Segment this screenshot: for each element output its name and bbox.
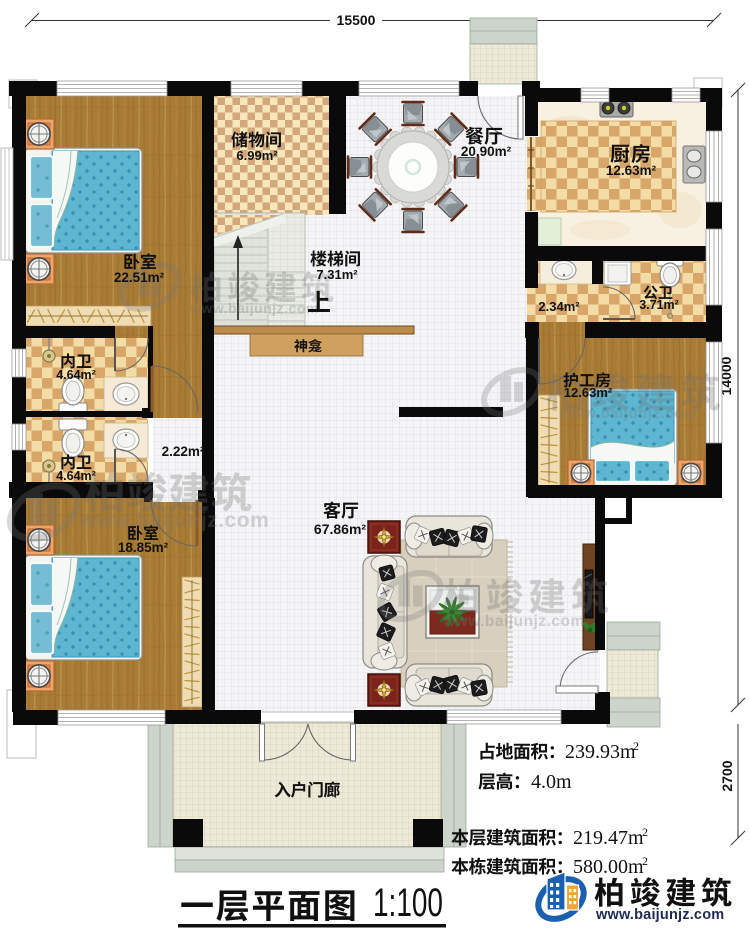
svg-text:www.baijunjz.com: www.baijunjz.com bbox=[559, 405, 697, 422]
svg-text:4.64m²: 4.64m² bbox=[56, 368, 96, 382]
svg-text:12.63m²: 12.63m² bbox=[564, 385, 613, 400]
svg-text:239.93m: 239.93m bbox=[565, 741, 636, 763]
svg-text:www.baijunjz.com: www.baijunjz.com bbox=[595, 907, 724, 923]
svg-text:4.0m: 4.0m bbox=[531, 771, 572, 793]
svg-text:580.00m: 580.00m bbox=[573, 856, 644, 878]
svg-text:12.63m²: 12.63m² bbox=[606, 163, 657, 178]
svg-text:www.baijunjz.com: www.baijunjz.com bbox=[189, 300, 319, 316]
svg-text:18.85m²: 18.85m² bbox=[118, 540, 169, 555]
svg-text:15500: 15500 bbox=[337, 12, 376, 28]
svg-text:3.71m²: 3.71m² bbox=[639, 298, 679, 312]
svg-text:20.90m²: 20.90m² bbox=[461, 144, 512, 159]
svg-text:2: 2 bbox=[642, 854, 648, 868]
svg-text:2.34m²: 2.34m² bbox=[538, 299, 580, 314]
svg-text:2: 2 bbox=[642, 825, 648, 839]
svg-text:www.baijunjz.com: www.baijunjz.com bbox=[79, 509, 269, 532]
svg-text:22.51m²: 22.51m² bbox=[114, 270, 165, 285]
svg-text:2.22m²: 2.22m² bbox=[162, 444, 205, 459]
svg-text:219.47m: 219.47m bbox=[573, 827, 644, 849]
svg-text:www.baijunjz.com: www.baijunjz.com bbox=[442, 613, 585, 630]
svg-text:1:100: 1:100 bbox=[373, 881, 443, 925]
svg-text:2700: 2700 bbox=[719, 760, 735, 791]
svg-text:7.31m²: 7.31m² bbox=[316, 267, 358, 282]
svg-text:67.86m²: 67.86m² bbox=[314, 521, 366, 537]
svg-text:2: 2 bbox=[633, 739, 639, 753]
svg-text:4.64m²: 4.64m² bbox=[56, 469, 96, 483]
svg-text:6.99m²: 6.99m² bbox=[236, 148, 278, 163]
